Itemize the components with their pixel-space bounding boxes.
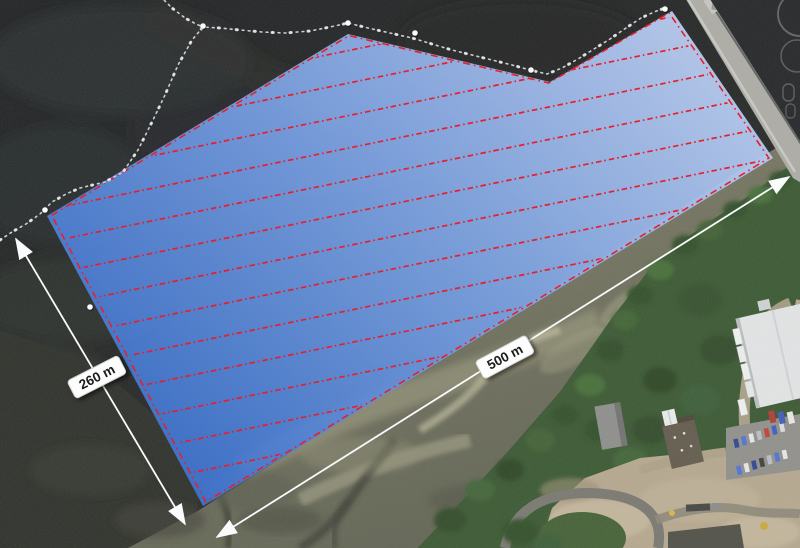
buoy-marker bbox=[200, 23, 206, 29]
boom-dotted-line bbox=[160, 0, 203, 27]
buoy-marker bbox=[87, 304, 93, 310]
boom-link-marks bbox=[160, 0, 203, 27]
aerial-survey-figure: 260 m 500 m bbox=[0, 0, 800, 548]
survey-overlay bbox=[0, 0, 800, 548]
survey-area-polygon bbox=[47, 11, 773, 506]
buoy-marker bbox=[662, 6, 668, 12]
transect-line bbox=[0, 376, 800, 548]
buoy-marker bbox=[345, 20, 351, 26]
buoy-marker bbox=[528, 67, 534, 73]
buoy-marker bbox=[412, 30, 418, 36]
buoy-marker bbox=[42, 207, 48, 213]
